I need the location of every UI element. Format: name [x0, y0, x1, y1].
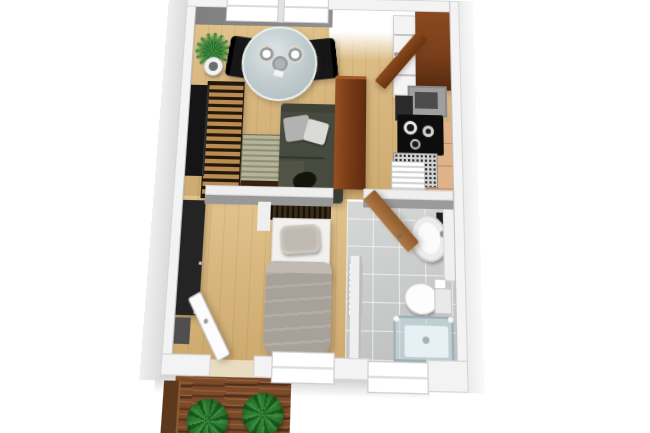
window-bottom-bedroom — [271, 351, 335, 385]
window-top-left — [226, 0, 280, 22]
burner-3 — [410, 139, 421, 150]
sofa-seat-seam — [279, 156, 324, 159]
kitchen-gray-appliance — [408, 86, 448, 118]
balcony-plant-right — [241, 392, 284, 433]
window-top-right — [283, 0, 329, 23]
burner-2 — [422, 125, 434, 137]
window-sill-line — [227, 5, 277, 8]
outer-wall-bottom-seg3 — [332, 357, 370, 380]
shower-post-1 — [393, 315, 399, 321]
window-sill-line — [272, 366, 333, 370]
kitchen-tall-cabinet — [415, 8, 451, 91]
inner-wall-stub-headboard — [257, 202, 271, 231]
outer-wall-bottom-seg1 — [160, 353, 211, 376]
window-mullion-pier — [278, 0, 284, 22]
balcony-threshold — [210, 359, 254, 377]
toilet-tank — [434, 288, 452, 314]
shower-post-2 — [448, 317, 454, 323]
bed-pillow — [280, 224, 321, 255]
shower-drain — [423, 337, 430, 344]
window-bottom-bathroom — [367, 361, 429, 395]
room-divider — [333, 76, 366, 190]
sofa-pillow-light — [303, 118, 330, 145]
coffee-table — [240, 134, 284, 189]
shower-enclosure — [393, 315, 454, 363]
outer-wall-bottom-seg4 — [426, 360, 469, 393]
appliance-inset — [415, 92, 438, 109]
window-sill-line — [285, 6, 328, 9]
kitchen-cooktop — [397, 114, 444, 155]
floorplan-render — [0, 0, 650, 433]
burner-1 — [404, 121, 418, 135]
apartment-plan — [149, 0, 473, 433]
window-sill-line — [369, 376, 428, 380]
bed-blanket — [263, 261, 332, 360]
inner-wall-bathroom-west — [349, 256, 361, 361]
